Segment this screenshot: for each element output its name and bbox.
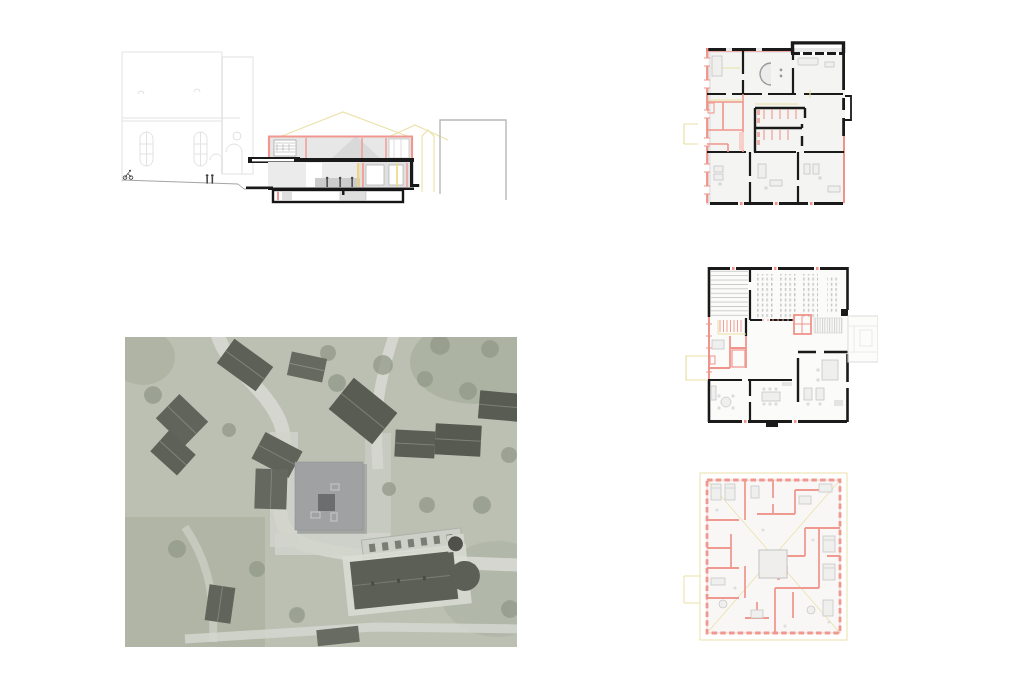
- plan2-bridge-extension: [848, 316, 878, 362]
- floor-plan-level-2: [684, 262, 878, 432]
- stair-steps: [720, 320, 741, 332]
- section-basement: [268, 188, 414, 203]
- floor-plan-level-1: [682, 40, 858, 208]
- plan2-yellow-datum: [686, 356, 708, 380]
- floor-plan-level-3: [682, 470, 854, 646]
- photo-veil: [125, 337, 517, 647]
- neighbor-building-outline: [440, 120, 506, 200]
- pedestrian-figures: [206, 174, 214, 183]
- church-elevation-outline: [122, 52, 253, 182]
- section-lower-floor: [246, 160, 419, 189]
- plan3-light-void: [759, 550, 787, 578]
- plan2-ramp-room: [711, 267, 750, 320]
- aerial-site-photo: [125, 337, 517, 647]
- cyclist-icon: [123, 170, 133, 180]
- balcony-bracket: [845, 96, 851, 120]
- ground-line: [122, 180, 267, 189]
- vestibule-mat: [814, 318, 842, 333]
- bottom-entry-step: [766, 422, 778, 427]
- building-section-drawing: [110, 32, 515, 212]
- architecture-presentation-board: [0, 0, 1028, 685]
